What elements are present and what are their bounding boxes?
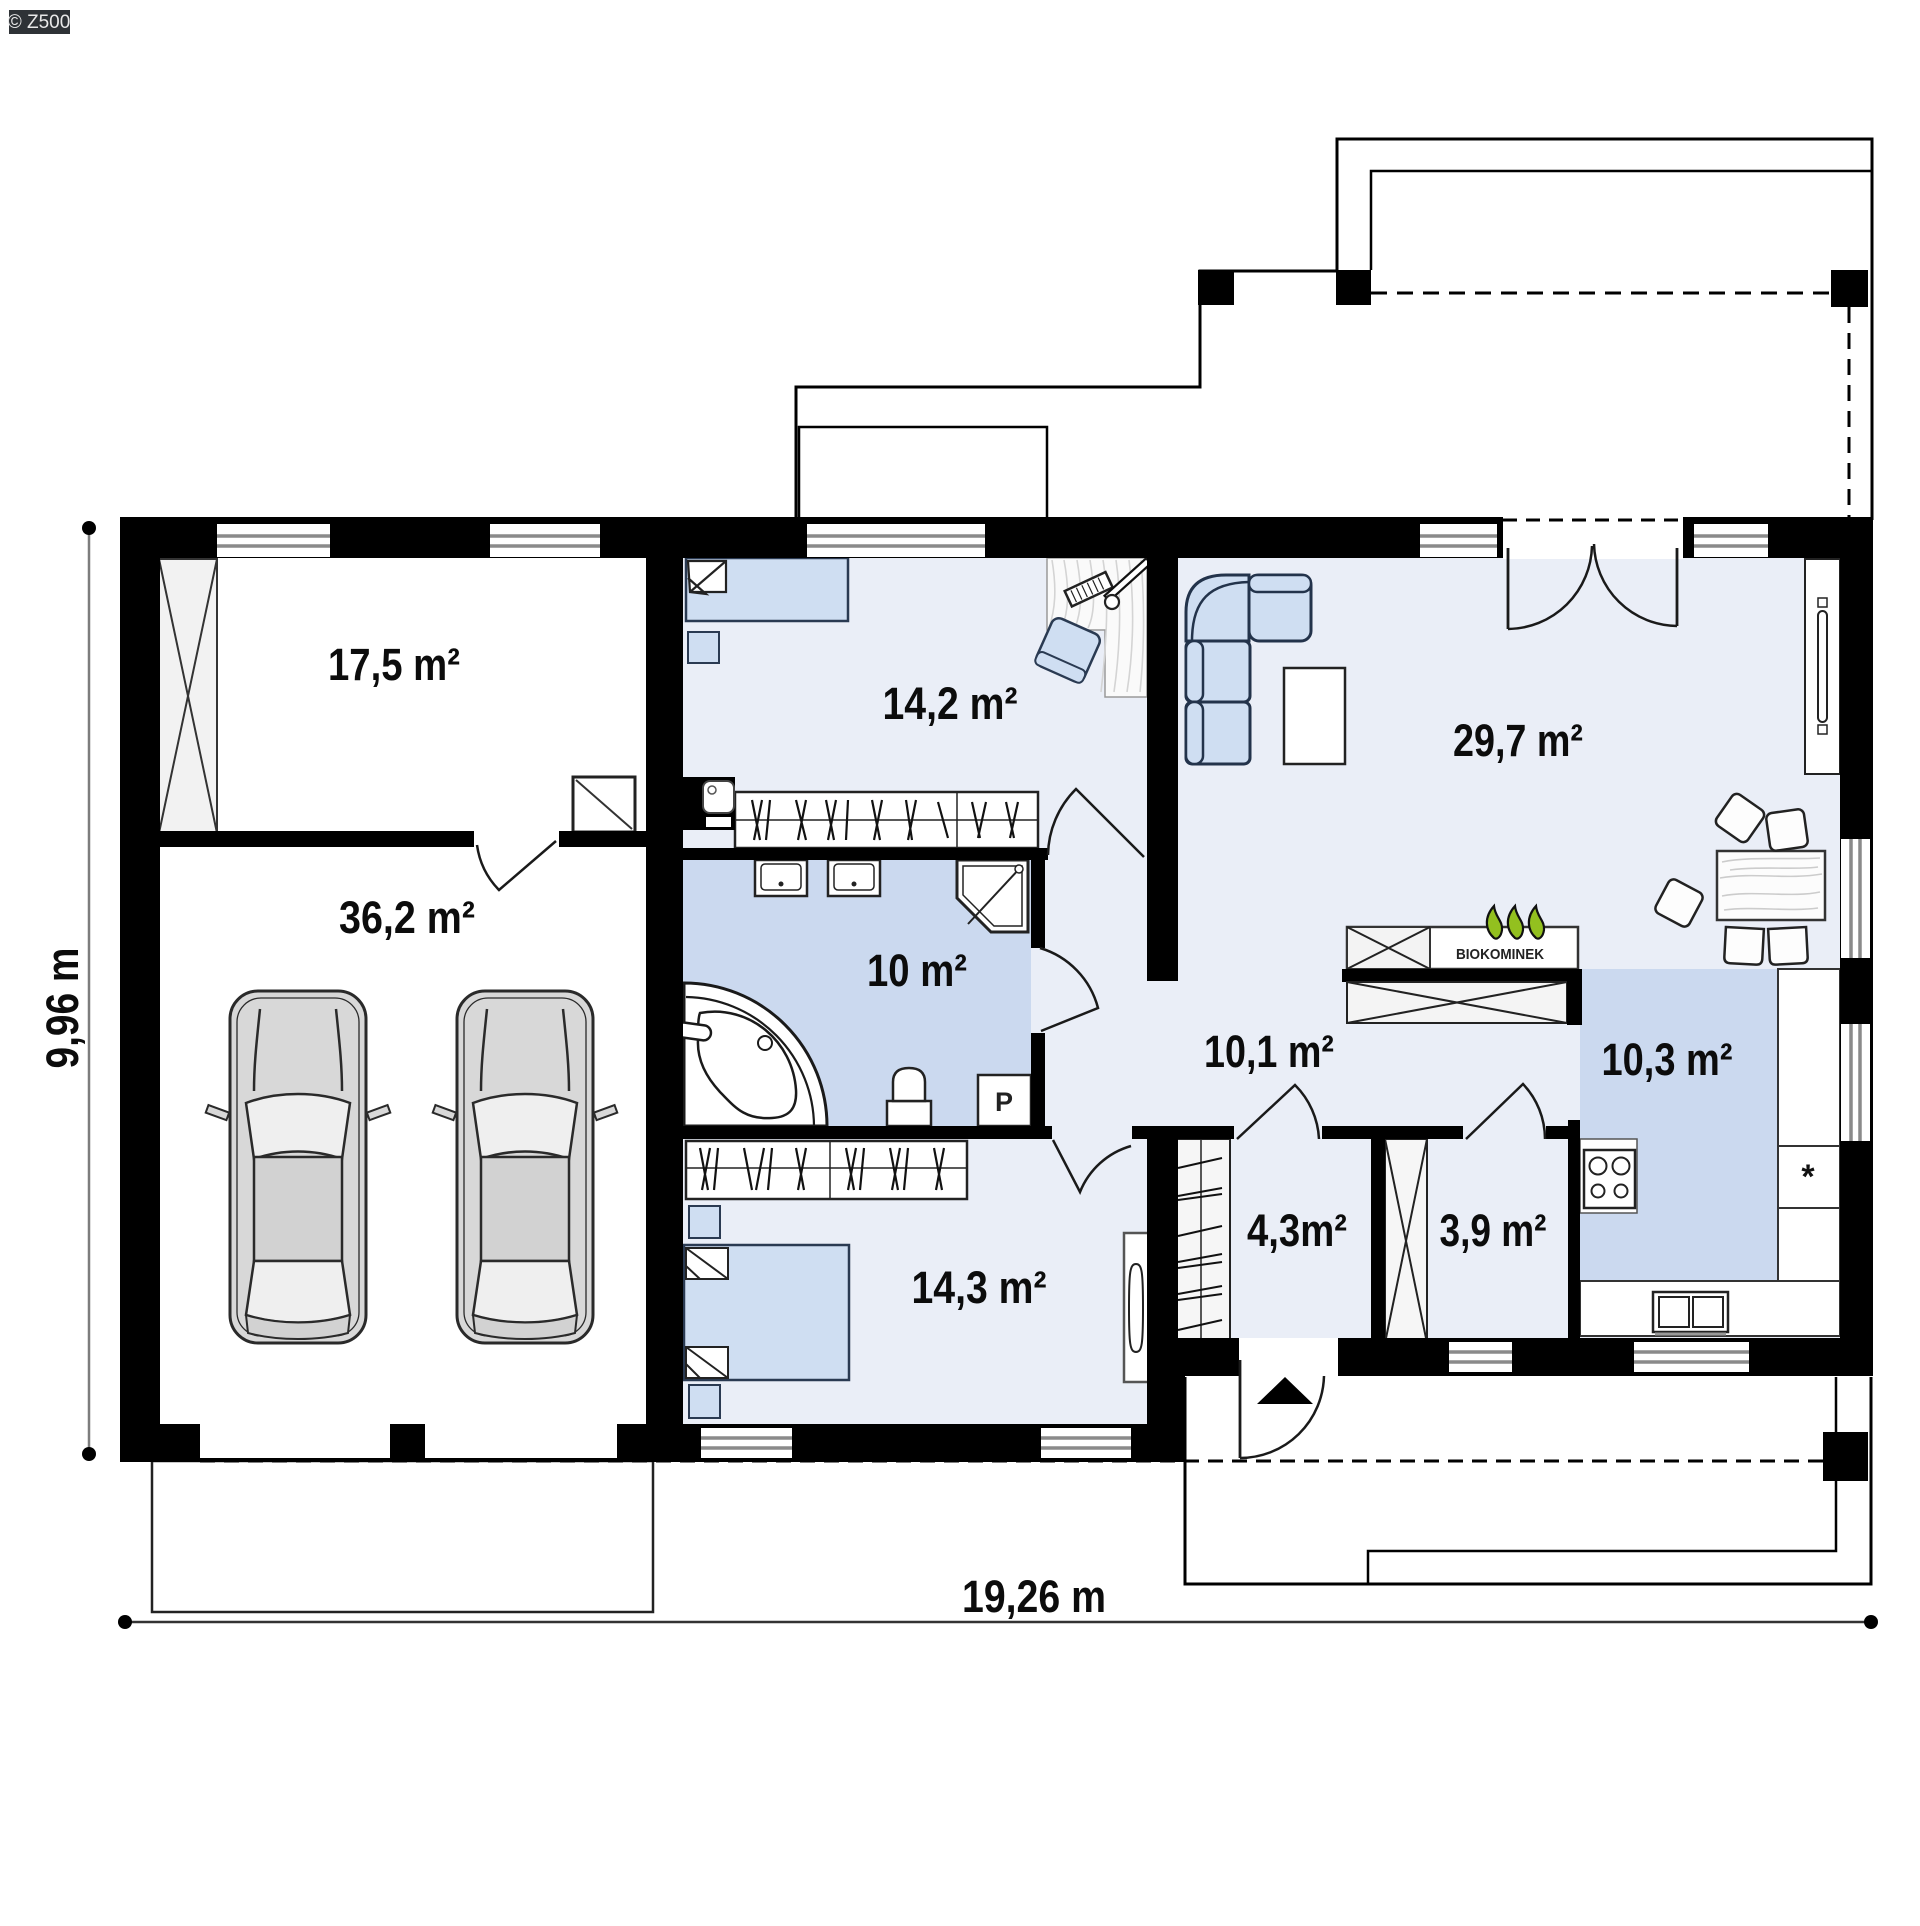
- svg-text:3,9 m²: 3,9 m²: [1440, 1205, 1547, 1256]
- svg-text:P: P: [995, 1087, 1013, 1117]
- svg-text:10,3 m²: 10,3 m²: [1602, 1034, 1733, 1085]
- svg-text:9,96 m: 9,96 m: [37, 948, 88, 1069]
- svg-text:BIOKOMINEK: BIOKOMINEK: [1456, 946, 1544, 963]
- svg-text:19,26 m: 19,26 m: [962, 1571, 1106, 1622]
- svg-text:36,2 m²: 36,2 m²: [339, 892, 475, 943]
- svg-text:4,3m²: 4,3m²: [1247, 1205, 1347, 1256]
- svg-text:10,1 m²: 10,1 m²: [1204, 1026, 1334, 1077]
- svg-text:29,7 m²: 29,7 m²: [1453, 715, 1583, 766]
- svg-text:17,5 m²: 17,5 m²: [328, 639, 460, 690]
- svg-text:10 m²: 10 m²: [867, 945, 967, 996]
- svg-text:14,2 m²: 14,2 m²: [883, 678, 1018, 729]
- svg-text:14,3 m²: 14,3 m²: [912, 1262, 1047, 1313]
- svg-text:*: *: [1801, 1158, 1815, 1196]
- svg-text:© Z500: © Z500: [8, 12, 71, 33]
